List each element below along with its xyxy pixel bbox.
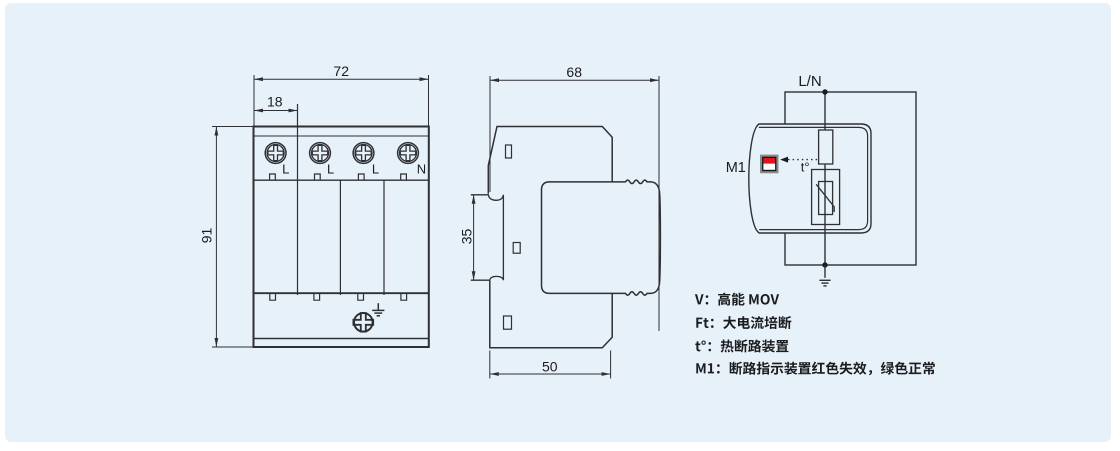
- svg-text:50: 50: [542, 359, 558, 375]
- svg-text:72: 72: [333, 63, 349, 79]
- svg-text:N: N: [417, 162, 426, 177]
- svg-text:68: 68: [566, 64, 582, 80]
- svg-text:t°: t°: [801, 159, 810, 174]
- svg-text:L/N: L/N: [798, 73, 821, 90]
- svg-text:35: 35: [458, 229, 474, 245]
- svg-text:M1: M1: [726, 160, 746, 176]
- svg-text:L: L: [372, 162, 379, 177]
- svg-text:L: L: [282, 162, 289, 177]
- svg-text:18: 18: [267, 94, 283, 110]
- svg-text:91: 91: [199, 228, 215, 244]
- svg-text:L: L: [327, 162, 334, 177]
